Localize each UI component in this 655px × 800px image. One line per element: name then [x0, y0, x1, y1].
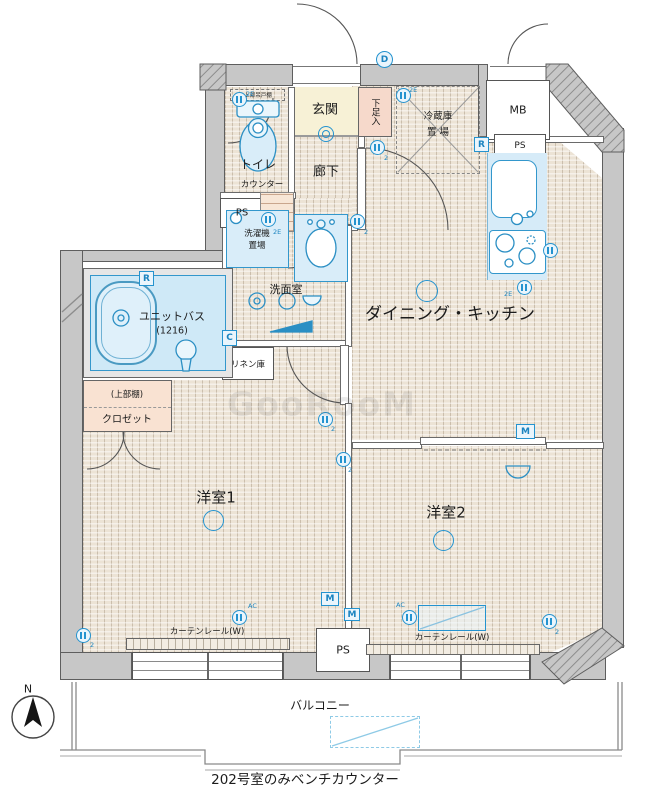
outlet-label-2: 2 — [348, 466, 352, 474]
outlet-label-2: 2 — [331, 425, 335, 433]
label-fridge-1: 冷蔵庫 — [424, 108, 453, 122]
label-unit-bath: ユニットバス — [139, 308, 205, 324]
outlet-label-ac: AC — [396, 601, 405, 609]
floor-plan: 2E 2E 2E 2E 2 2 2 2 2 2 AC AC D R R C M … — [0, 0, 655, 800]
outlet-icon — [232, 610, 247, 625]
label-room2: 洋室2 — [426, 502, 466, 523]
ceiling-light-dk-icon — [416, 280, 438, 302]
outlet-label-2: 2 — [364, 228, 368, 236]
multimedia-marker: M — [321, 592, 339, 606]
label-genkan: 玄関 — [312, 99, 338, 118]
outlet-icon — [261, 212, 276, 227]
label-fridge-2: 置 場 — [427, 124, 449, 138]
outlet-label-2e: 2E — [273, 228, 281, 236]
outlet-label-2e: 2E — [409, 86, 417, 94]
label-room1: 洋室1 — [196, 487, 236, 508]
label-closet-upper: (上部棚) — [111, 388, 143, 400]
range-marker: R — [139, 271, 154, 286]
doorbell-marker: D — [376, 51, 393, 68]
outlet-label-2: 2 — [90, 641, 94, 649]
cold-water-marker: C — [222, 330, 237, 346]
ac-indoor-unit — [418, 605, 486, 631]
ceiling-light-room2-icon — [433, 530, 454, 551]
outlet-icon — [232, 92, 247, 107]
label-laundry-2: 置場 — [248, 239, 265, 251]
range-marker: R — [474, 137, 489, 152]
outlet-icon — [542, 614, 557, 629]
label-ps-left: PS — [236, 208, 248, 219]
label-washroom: 洗面室 — [270, 281, 303, 297]
label-curtain-rail-room2: カーテンレール(W) — [415, 631, 490, 643]
label-ps-bottom: PS — [336, 644, 350, 657]
compass-north-label: N — [24, 683, 32, 696]
label-laundry-1: 洗濯機 — [244, 227, 270, 239]
outlet-icon — [543, 243, 558, 258]
label-ps-kitchen: PS — [514, 141, 525, 151]
label-dining-kitchen: ダイニング・キッチン — [365, 300, 535, 325]
label-linen: リネン庫 — [231, 358, 265, 370]
ceiling-light-room1-icon — [203, 510, 224, 531]
outlet-icon — [370, 140, 385, 155]
label-counter: カウンター — [241, 178, 284, 190]
outlet-label-2: 2 — [384, 154, 388, 162]
label-balcony: バルコニー — [290, 697, 350, 714]
outlet-icon — [402, 610, 417, 625]
fixture-details — [0, 0, 655, 800]
label-unit-bath-size: (1216) — [156, 326, 188, 337]
outlet-icon — [336, 452, 351, 467]
outlet-label-2: 2 — [555, 628, 559, 636]
label-corridor: 廊下 — [313, 161, 339, 180]
label-closet: クロゼット — [102, 411, 152, 426]
outlet-label-2e: 2E — [504, 290, 512, 298]
multimedia-marker: M — [344, 608, 360, 621]
outlet-label-ac: AC — [248, 602, 257, 610]
label-curtain-rail-room1: カーテンレール(W) — [170, 625, 245, 637]
ceiling-light-genkan-icon — [318, 126, 334, 142]
label-mb: MB — [509, 104, 526, 117]
outlet-label-2e: 2E — [246, 90, 254, 98]
label-toilet: トイレ — [240, 156, 276, 173]
plan-note: 202号室のみベンチカウンター — [211, 768, 399, 788]
outlet-icon — [517, 280, 532, 295]
outlet-icon — [350, 214, 365, 229]
label-shoe-box: 下足入 — [369, 99, 382, 126]
outlet-icon — [76, 628, 91, 643]
multimedia-marker: M — [516, 424, 535, 439]
